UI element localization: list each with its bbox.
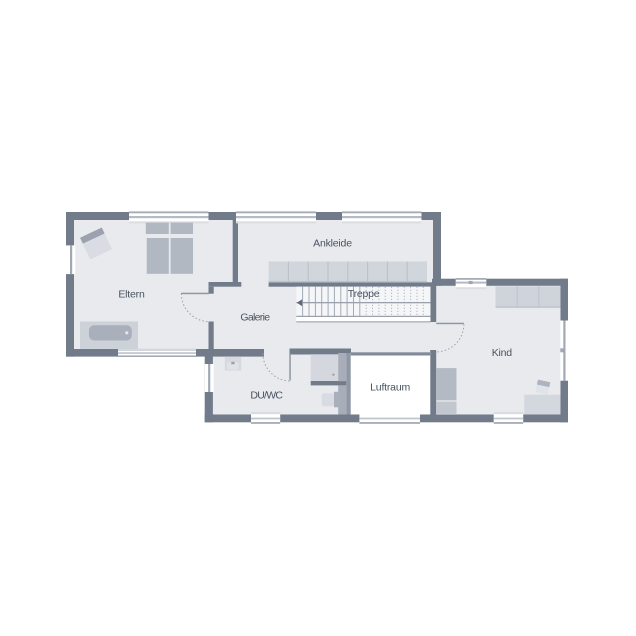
svg-text:Treppe: Treppe: [348, 288, 380, 300]
svg-text:Ankleide: Ankleide: [313, 237, 352, 249]
svg-text:Galerie: Galerie: [240, 312, 270, 324]
svg-text:DU/WC: DU/WC: [250, 389, 283, 401]
svg-text:Kind: Kind: [492, 347, 513, 359]
svg-text:Luftraum: Luftraum: [370, 381, 410, 393]
svg-text:Eltern: Eltern: [118, 289, 145, 301]
